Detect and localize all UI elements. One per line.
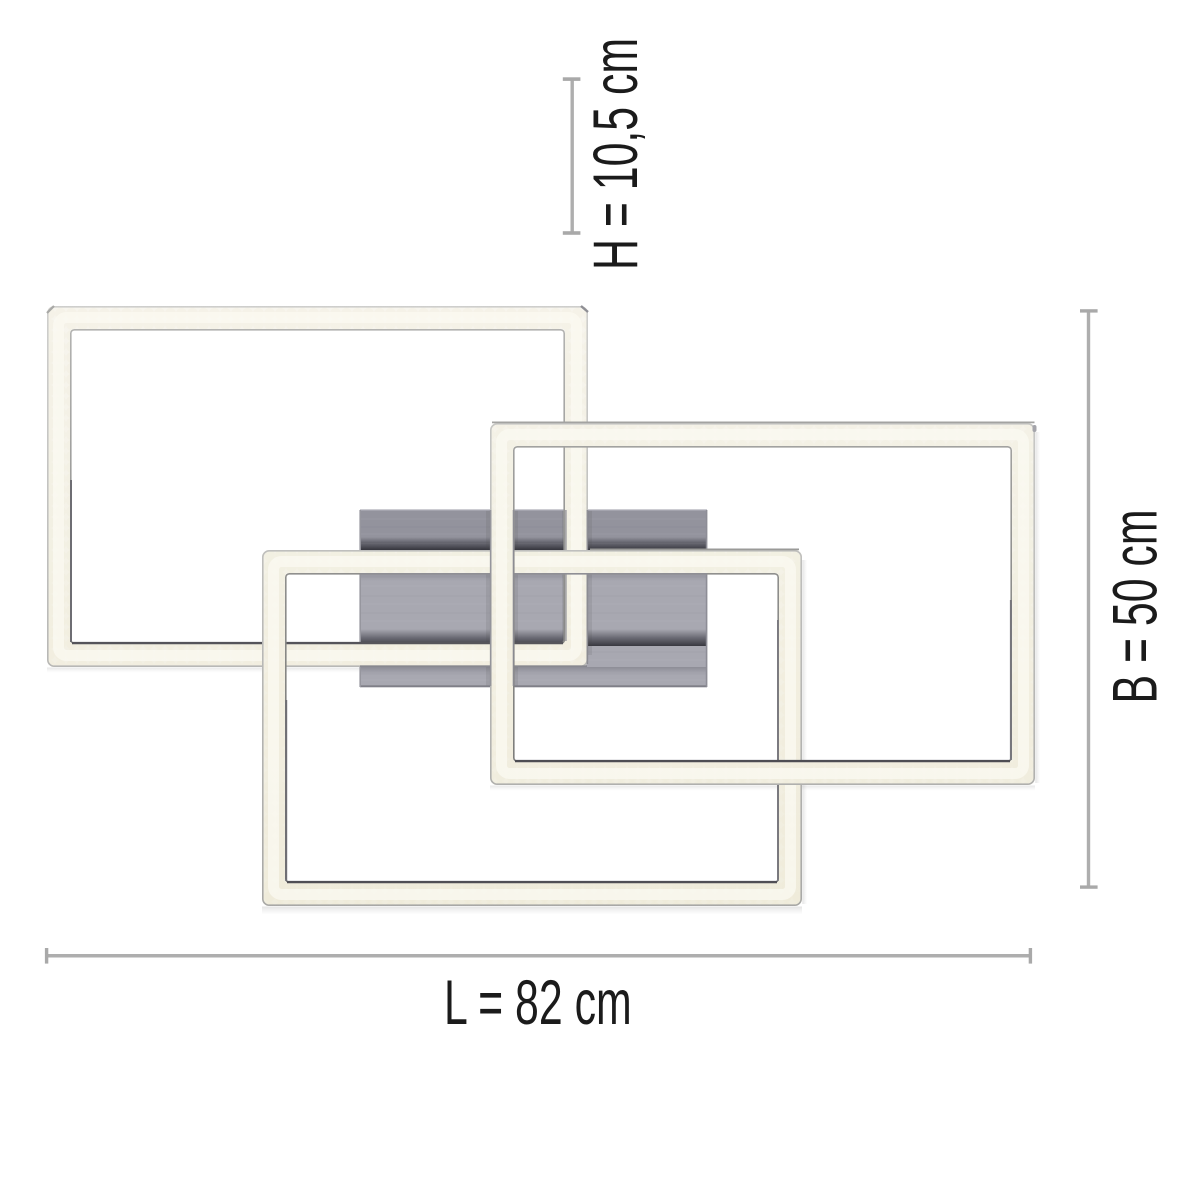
svg-text:L = 82 cm: L = 82 cm bbox=[444, 968, 632, 1038]
svg-text:B = 50 cm: B = 50 cm bbox=[1100, 509, 1170, 703]
svg-text:H = 10,5 cm: H = 10,5 cm bbox=[581, 38, 651, 270]
